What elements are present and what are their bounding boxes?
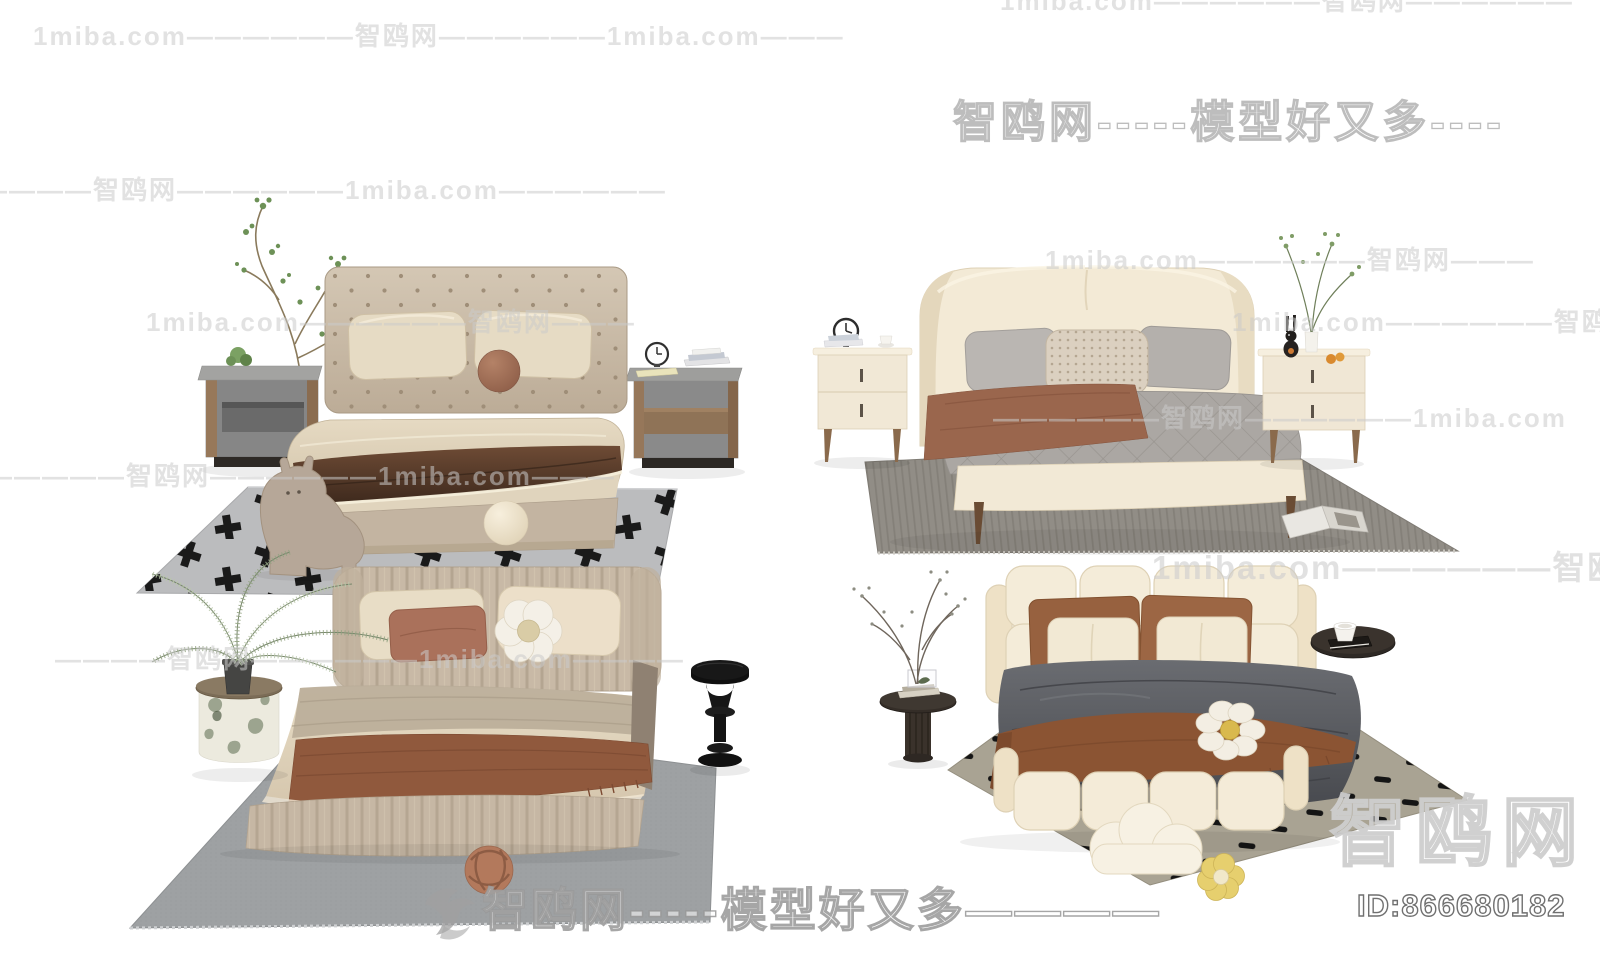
bed-base-ribbed [220,795,680,864]
bed-base [954,460,1306,511]
scene-bottom-right [852,566,1467,901]
dried-branch-plant [852,570,966,684]
potted-plant-small [226,347,252,366]
render-canvas [0,0,1600,967]
knot-ball-cushion [465,846,513,894]
pillow-terracotta [389,606,488,663]
pillow-gray-left [964,328,1059,393]
pillow-flower-white [495,600,562,662]
scene-top-left [137,197,745,597]
cup-on-table [1334,622,1356,641]
alarm-clock [646,343,668,367]
ball-cushion-brown [478,350,520,392]
pillow-left [348,311,467,380]
nightstand-right-wood [626,343,745,479]
pillow-gray-right [1136,326,1231,391]
books-stack [824,334,863,347]
model-preview-image: 1miba.com——————智鸥网—————— 1miba.com——————… [0,0,1600,967]
nightstand-left-cream [813,319,912,469]
black-sculptural-stool [690,660,750,776]
books-and-glass-box [898,670,940,698]
scene-bottom-left [130,552,750,928]
bed-button-tufted [325,267,627,413]
tray-table-black [1311,622,1395,658]
pedestal-table-dark [852,570,966,769]
nightstand-right-cream [1258,232,1370,470]
rabbit-figurine [1284,315,1299,358]
coffee-cup [878,336,894,348]
scene-top-right [813,232,1458,555]
bed-puffy-modular [960,566,1361,901]
ball-cushion-cream [484,501,528,545]
bed-channel-tufted [333,567,661,691]
